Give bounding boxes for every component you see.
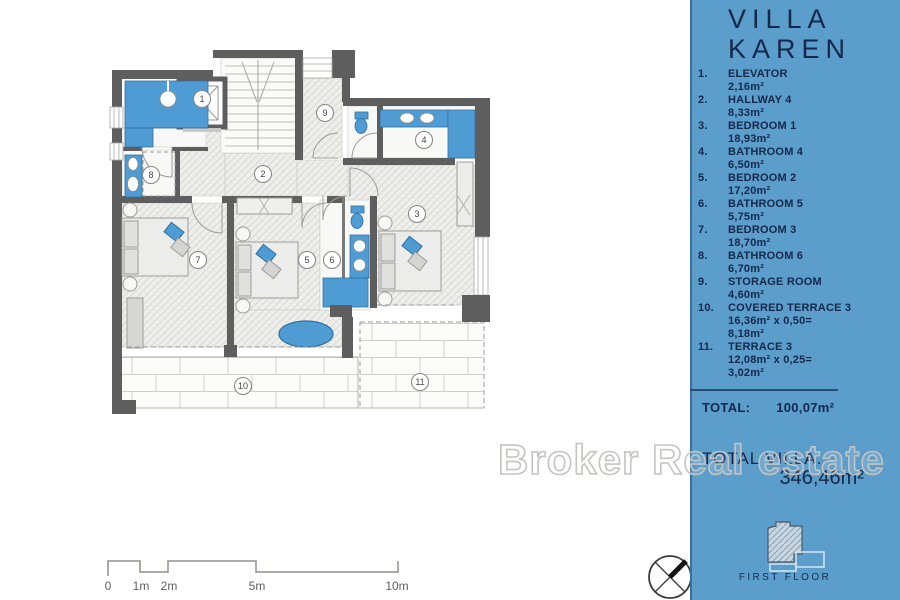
room-item-name: ELEVATOR bbox=[728, 68, 894, 81]
room-item-number: 5. bbox=[698, 172, 728, 198]
room-badge: 8 bbox=[143, 167, 160, 184]
compass-icon bbox=[649, 556, 690, 598]
room-item-text: BATHROOM 46,50m² bbox=[728, 146, 894, 172]
room-item-number: 2. bbox=[698, 94, 728, 120]
room-badge: 4 bbox=[416, 132, 433, 149]
room-item-name: HALLWAY 4 bbox=[728, 94, 894, 107]
room-item-area: 16,36m² x 0,50= bbox=[728, 315, 894, 328]
svg-text:9: 9 bbox=[322, 108, 327, 118]
room-list-item: 2.HALLWAY 48,33m² bbox=[698, 94, 894, 120]
room-list-item: 5.BEDROOM 217,20m² bbox=[698, 172, 894, 198]
first-floor-label: FIRST FLOOR bbox=[737, 572, 833, 583]
room-list-item: 7.BEDROOM 318,70m² bbox=[698, 224, 894, 250]
room-item-area: 2,16m² bbox=[728, 81, 894, 94]
room-item-text: BATHROOM 66,70m² bbox=[728, 250, 894, 276]
room-item-area: 17,20m² bbox=[728, 185, 894, 198]
room-list-item: 9.STORAGE ROOM4,60m² bbox=[698, 276, 894, 302]
room-list: 1.ELEVATOR2,16m²2.HALLWAY 48,33m²3.BEDRO… bbox=[698, 68, 894, 380]
room-item-area: 3,02m² bbox=[728, 367, 894, 380]
total-label: TOTAL: bbox=[702, 400, 750, 415]
room-badge: 9 bbox=[317, 105, 334, 122]
room-list-item: 1.ELEVATOR2,16m² bbox=[698, 68, 894, 94]
room-badge: 5 bbox=[299, 252, 316, 269]
room-item-area: 4,60m² bbox=[728, 289, 894, 302]
room-item-number: 10. bbox=[698, 302, 728, 341]
villa-title-line2: KAREN bbox=[728, 34, 851, 64]
room-item-name: TERRACE 3 bbox=[728, 341, 894, 354]
room-item-area: 12,08m² x 0,25= bbox=[728, 354, 894, 367]
room-item-area: 8,33m² bbox=[728, 107, 894, 120]
room-item-number: 11. bbox=[698, 341, 728, 380]
room-item-area: 18,70m² bbox=[728, 237, 894, 250]
room-item-name: STORAGE ROOM bbox=[728, 276, 894, 289]
room-item-text: BATHROOM 55,75m² bbox=[728, 198, 894, 224]
total-villa-label: TOTAL VILLA: bbox=[702, 449, 822, 469]
room-list-item: 6.BATHROOM 55,75m² bbox=[698, 198, 894, 224]
room-badge: 2 bbox=[255, 166, 272, 183]
svg-text:10m: 10m bbox=[385, 579, 408, 593]
room-list-item: 11.TERRACE 312,08m² x 0,25=3,02m² bbox=[698, 341, 894, 380]
svg-text:11: 11 bbox=[415, 377, 424, 387]
svg-text:8: 8 bbox=[148, 170, 153, 180]
room-item-text: TERRACE 312,08m² x 0,25=3,02m² bbox=[728, 341, 894, 380]
svg-text:3: 3 bbox=[414, 209, 419, 219]
room-badge: 7 bbox=[190, 252, 207, 269]
room-item-name: BATHROOM 5 bbox=[728, 198, 894, 211]
svg-text:10: 10 bbox=[238, 381, 248, 391]
svg-text:1m: 1m bbox=[133, 579, 150, 593]
room-item-number: 4. bbox=[698, 146, 728, 172]
room-item-text: HALLWAY 48,33m² bbox=[728, 94, 894, 120]
room-item-area: 5,75m² bbox=[728, 211, 894, 224]
info-panel: VILLA KAREN 1.ELEVATOR2,16m²2.HALLWAY 48… bbox=[690, 0, 900, 600]
room-item-number: 7. bbox=[698, 224, 728, 250]
room-badge: 3 bbox=[409, 206, 426, 223]
first-floor-icon bbox=[742, 514, 838, 572]
room-list-item: 8.BATHROOM 66,70m² bbox=[698, 250, 894, 276]
room-badge: 10 bbox=[235, 378, 252, 395]
room-item-text: BEDROOM 217,20m² bbox=[728, 172, 894, 198]
room-badge: 1 bbox=[194, 91, 211, 108]
room-item-number: 8. bbox=[698, 250, 728, 276]
room-list-item: 10.COVERED TERRACE 316,36m² x 0,50=8,18m… bbox=[698, 302, 894, 341]
floorplan-sheet: 1 2 3 4 5 6 7 8 9 10 11 0 1m 2m 5m 10m bbox=[0, 0, 900, 600]
svg-text:6: 6 bbox=[329, 255, 334, 265]
svg-text:0: 0 bbox=[105, 579, 112, 593]
svg-text:1: 1 bbox=[199, 94, 204, 104]
room-item-name: BEDROOM 3 bbox=[728, 224, 894, 237]
room-item-area: 6,50m² bbox=[728, 159, 894, 172]
room-item-text: COVERED TERRACE 316,36m² x 0,50=8,18m² bbox=[728, 302, 894, 341]
room-item-number: 1. bbox=[698, 68, 728, 94]
villa-title-line1: VILLA bbox=[728, 4, 851, 34]
svg-text:7: 7 bbox=[195, 255, 200, 265]
total-row: TOTAL: 100,07m² bbox=[702, 400, 834, 415]
room-item-name: BEDROOM 1 bbox=[728, 120, 894, 133]
room-item-number: 3. bbox=[698, 120, 728, 146]
total-villa-value: 346,46m² bbox=[780, 467, 865, 490]
room-item-number: 6. bbox=[698, 198, 728, 224]
room-item-name: COVERED TERRACE 3 bbox=[728, 302, 894, 315]
scale-bar: 0 1m 2m 5m 10m bbox=[105, 561, 409, 593]
room-item-area: 6,70m² bbox=[728, 263, 894, 276]
panel-edge-line bbox=[690, 0, 692, 600]
room-item-name: BATHROOM 6 bbox=[728, 250, 894, 263]
svg-text:2: 2 bbox=[260, 169, 265, 179]
room-item-number: 9. bbox=[698, 276, 728, 302]
villa-title: VILLA KAREN bbox=[728, 4, 851, 64]
svg-text:4: 4 bbox=[421, 135, 426, 145]
room-item-name: BATHROOM 4 bbox=[728, 146, 894, 159]
room-item-name: BEDROOM 2 bbox=[728, 172, 894, 185]
room-item-text: BEDROOM 118,93m² bbox=[728, 120, 894, 146]
room-item-text: ELEVATOR2,16m² bbox=[728, 68, 894, 94]
room-item-area: 18,93m² bbox=[728, 133, 894, 146]
svg-text:5m: 5m bbox=[249, 579, 266, 593]
svg-text:2m: 2m bbox=[161, 579, 178, 593]
first-floor-shape bbox=[768, 522, 802, 562]
room-list-item: 3.BEDROOM 118,93m² bbox=[698, 120, 894, 146]
total-divider bbox=[690, 389, 838, 391]
room-badge: 11 bbox=[412, 374, 429, 391]
svg-text:5: 5 bbox=[304, 255, 309, 265]
floor-plan-drawing: 1 2 3 4 5 6 7 8 9 10 11 0 1m 2m 5m 10m bbox=[0, 0, 690, 600]
total-value: 100,07m² bbox=[776, 400, 834, 415]
room-badge: 6 bbox=[324, 252, 341, 269]
room-list-item: 4.BATHROOM 46,50m² bbox=[698, 146, 894, 172]
room-item-area: 8,18m² bbox=[728, 328, 894, 341]
floor-outline-lower bbox=[770, 564, 796, 571]
room-item-text: BEDROOM 318,70m² bbox=[728, 224, 894, 250]
room-item-text: STORAGE ROOM4,60m² bbox=[728, 276, 894, 302]
